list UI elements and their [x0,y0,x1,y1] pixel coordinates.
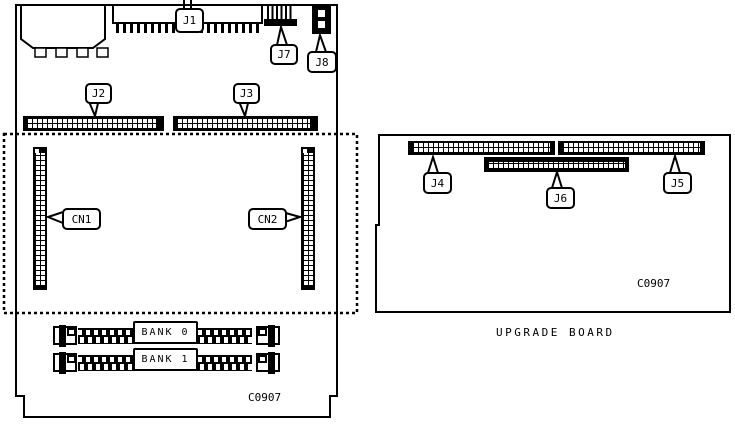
cn1-label: CN1 [62,208,101,230]
upgrade-board-caption: UPGRADE BOARD [496,327,615,338]
j6-connector [484,157,629,172]
j1-label: J1 [175,8,204,33]
j8-label-pointer [316,35,326,52]
cn1-pin1-marker [35,149,39,153]
keyboard-connector-tab [56,48,67,57]
j7-label-pointer [277,27,287,45]
bank1-socket-left-post [59,352,66,374]
j4-label: J4 [423,172,452,194]
keyboard-connector [21,5,105,48]
bank0-socket-right-latch [258,328,267,336]
cn2-label: CN2 [248,208,287,230]
j7-connector-pins [267,5,294,19]
cn1-label-pointer [48,212,63,223]
j4-label-pointer [428,157,438,173]
bank0-socket-left-latch [67,328,76,336]
keyboard-connector-tab [97,48,108,57]
bank0-socket-right-post [268,325,275,347]
bank0-label: BANK 0 [133,321,198,344]
j7-label: J7 [270,44,298,65]
bank0-socket-left-post [59,325,66,347]
main-board-ref-code: C0907 [248,392,281,403]
j8-label: J8 [307,51,337,73]
j5-connector [558,141,705,155]
bank1-socket-right-post [268,352,275,374]
j2-label: J2 [85,83,112,104]
j6-label: J6 [546,187,575,209]
j8-jumper-pin [318,21,325,28]
bank1-socket-left-latch [67,355,76,363]
cn1-connector [33,147,47,290]
circuit-board-diagram: J1 J2 J3 J7 J8 CN1 CN2 BANK 0 BANK 1 C09… [0,0,735,424]
j6-label-pointer [552,172,562,188]
j5-label-pointer [670,156,680,173]
j8-jumper-pin [318,10,325,17]
j5-label: J5 [663,172,692,194]
j4-connector [408,141,555,155]
j3-connector [173,116,318,131]
keyboard-connector-tab [77,48,88,57]
cn2-connector [301,147,315,290]
bank1-label: BANK 1 [133,348,198,371]
j3-label: J3 [233,83,260,104]
j8-connector [312,5,331,34]
j2-connector [23,116,164,131]
bank1-socket-right-latch [258,355,267,363]
cn2-pin1-marker [303,149,307,153]
j7-connector-base [264,19,297,26]
upgrade-board-ref-code: C0907 [637,278,670,289]
keyboard-connector-tab [35,48,46,57]
